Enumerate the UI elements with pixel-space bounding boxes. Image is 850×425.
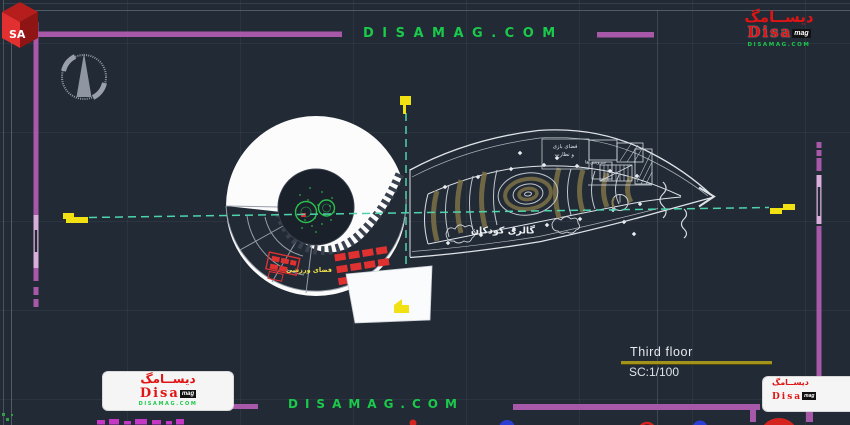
cutoff-red-circle-large: [759, 418, 799, 425]
logo-latin-name: Disa: [140, 386, 180, 401]
ruler-tick-1: [750, 410, 756, 422]
circular-stair: [612, 195, 628, 211]
sports-space-label: فضای ورزشی: [286, 266, 332, 274]
logo-top-right: دیســامگ Disamag DISAMAG.COM: [737, 10, 821, 49]
play-space-label-line2: و نظارت: [554, 152, 574, 158]
cutoff-magenta-text: [97, 419, 184, 425]
ruler-top-right: [597, 32, 654, 38]
bottom-cutoff-shapes: [2, 413, 799, 425]
cutoff-blue-circle-1: [499, 420, 515, 425]
floor-title: Third floor: [630, 346, 693, 359]
logo-bottom-right: دیســامگ Disamag: [763, 377, 850, 411]
section-marker-right: [770, 204, 795, 214]
logo-mag-badge: mag: [180, 390, 196, 398]
services-label: سرویس ها: [585, 161, 606, 166]
logo-site-url: DISAMAG.COM: [737, 43, 821, 49]
ruler-right-vertical: [817, 142, 822, 378]
ruler-top-left: [13, 32, 342, 38]
circular-block: فضای ورزشی: [226, 116, 406, 297]
cutoff-red-dot: [410, 420, 417, 425]
logo-mag-badge: mag: [792, 29, 810, 38]
cutoff-blue-circle-2: [693, 421, 708, 425]
ruler-bottom-right: [513, 404, 760, 410]
logo-latin-name: Disa: [747, 23, 792, 41]
wing-outer-top: [410, 130, 712, 196]
section-line-horizontal: [89, 208, 769, 218]
scale-label: SC:1/100: [629, 366, 679, 378]
watermark-bottom: DISAMAG.COM: [288, 398, 464, 410]
ruler-left-vertical: [34, 22, 39, 307]
children-gallery-label: گالری کودکان: [471, 225, 536, 237]
logo-cube-mark: SA: [0, 0, 38, 50]
logo-mag-badge: mag: [802, 392, 816, 400]
gallery-wing: گالری کودکان فضای بازی و نظارت سرویس ها: [410, 130, 714, 258]
section-marker-top: [400, 96, 411, 114]
break-line-squiggles: [660, 182, 687, 238]
section-marker-left: [63, 213, 88, 223]
cube-letters: SA: [9, 28, 26, 41]
logo-bottom-left: دیســامگ Disamag DISAMAG.COM: [103, 372, 233, 410]
north-arrow: [62, 53, 106, 99]
watermark-top: DISAMAG.COM: [363, 27, 564, 40]
play-space-label-line1: فضای بازی: [553, 144, 578, 150]
ramp-panel: [346, 266, 432, 323]
ruler-tick-2: [806, 412, 813, 422]
cad-sheet: فضای ورزشی: [0, 0, 850, 425]
logo-latin-name: Disa: [772, 392, 802, 402]
wall-hatch: [620, 144, 652, 184]
logo-site-url: DISAMAG.COM: [103, 402, 233, 407]
